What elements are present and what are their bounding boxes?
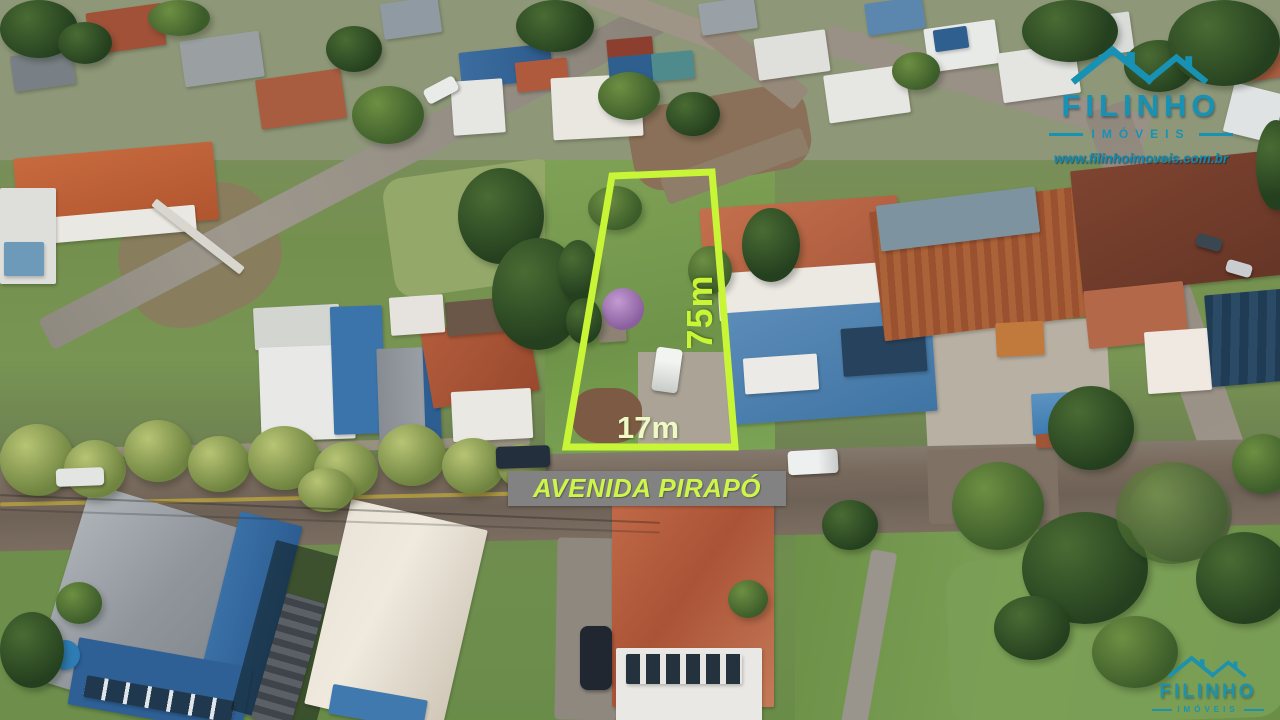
tree [0, 612, 64, 688]
brand-tagline: IMÓVEIS [1177, 705, 1238, 714]
brand-tagline-row: IMÓVEIS [1152, 705, 1263, 714]
brand-name: FILINHO [1062, 88, 1221, 124]
street-tree [442, 438, 504, 494]
tree [952, 462, 1044, 550]
rule-line [1152, 709, 1172, 711]
brand-name: FILINHO [1160, 681, 1257, 703]
aerial-photo: 75m 17m AVENIDA PIRAPÓ FILINHO IMÓVEIS w… [0, 0, 1280, 720]
building [651, 50, 695, 82]
tree [1048, 386, 1134, 470]
brand-website: www.filinhoimoveis.com.br [1054, 151, 1228, 166]
building [4, 242, 44, 276]
tree [58, 22, 112, 64]
building [1144, 328, 1212, 394]
palm-tree [728, 580, 768, 618]
brand-watermark: FILINHO IMÓVEIS [1146, 652, 1270, 714]
tree [598, 72, 660, 120]
building [253, 304, 341, 350]
rule-line [1049, 133, 1083, 136]
street-tree [298, 468, 354, 512]
building [389, 294, 446, 336]
tree [326, 26, 382, 72]
street-tree [124, 420, 192, 482]
tree [666, 92, 720, 136]
van [787, 449, 838, 476]
house-wall [451, 388, 534, 442]
tree [516, 0, 594, 52]
solar-panel [933, 26, 970, 53]
tree [822, 500, 878, 550]
window-row [626, 654, 742, 684]
lot-width-label: 17m [598, 408, 698, 448]
roofs-icon [1066, 40, 1216, 86]
rule-line [1244, 709, 1264, 711]
roofs-icon [1165, 652, 1251, 679]
car [580, 626, 612, 690]
tree [148, 0, 210, 36]
rule-line [1199, 133, 1233, 136]
pallet-stack [995, 321, 1045, 357]
tree [56, 582, 102, 624]
truck [56, 467, 105, 487]
street-name: AVENIDA PIRAPÓ [533, 473, 761, 504]
brand-tagline-row: IMÓVEIS [1049, 127, 1232, 141]
tree [994, 596, 1070, 660]
lot-depth-label: 75m [680, 272, 720, 352]
tree [352, 86, 424, 144]
street-tree [378, 424, 446, 486]
brand-logo: FILINHO IMÓVEIS www.filinhoimoveis.com.b… [1036, 40, 1246, 166]
tree [892, 52, 940, 90]
street-banner: AVENIDA PIRAPÓ [508, 471, 786, 506]
solar-roof [1204, 289, 1280, 387]
brand-tagline: IMÓVEIS [1091, 127, 1190, 141]
street-tree [188, 436, 250, 492]
